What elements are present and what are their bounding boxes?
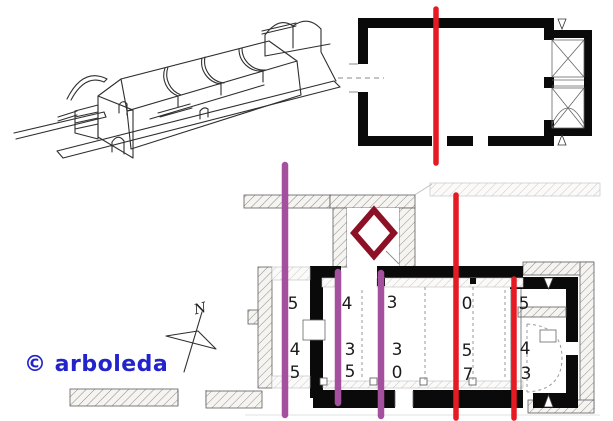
sketch-east-structure [265, 26, 336, 81]
nave-west-door [303, 320, 325, 340]
sketch-floor-lines [150, 85, 264, 119]
lower-plan-faint-connector [413, 184, 432, 196]
plan-cell-r1c1: 3 [345, 340, 356, 360]
sketch-front-wall [127, 61, 301, 149]
sketch-arch-rib-1 [164, 67, 181, 96]
upper-plan-south-door-gap-2 [473, 136, 488, 146]
compass-rose: N [166, 300, 216, 372]
upper-plan-cross-vault-lines [552, 40, 584, 77]
sketch-plinth [57, 81, 340, 158]
nave-pier-stub-2 [470, 278, 476, 284]
upper-plan-east-wall-a [544, 18, 554, 40]
courtyard-gate-jambs [178, 390, 206, 405]
sketch-arch-rib-2 [202, 57, 224, 84]
plan-cell-r1c3: 5 [462, 341, 473, 361]
courtyard-south-wall-a [70, 389, 178, 406]
nave-south-door-jambs [395, 391, 413, 407]
nave-west-wall-a [310, 266, 323, 324]
upper-plan-south-wall [358, 136, 554, 146]
nave-north-ledge-a [322, 278, 335, 287]
scanned-architecture-page: 5 4 3 0 5 4 3 3 5 4 5 5 0 7 3 N © arbole… [0, 0, 613, 421]
upper-floor-plan [338, 18, 592, 146]
plan-cell-r1c2: 3 [392, 340, 403, 360]
upper-plan-west-wall-a [358, 28, 368, 64]
sketch-dome [67, 76, 107, 100]
plan-cell-r0c0: 5 [288, 294, 299, 314]
upper-plan-east-wall-c [544, 120, 554, 146]
plan-cell-r2c0: 5 [290, 363, 301, 383]
upper-plan-window-mark-top [558, 19, 566, 29]
upper-plan-bay-divider [552, 80, 584, 86]
compass-label: N [191, 300, 208, 319]
plan-cell-r2c3: 7 [463, 365, 474, 385]
chancel-outer-east-wall [580, 262, 594, 410]
upper-plan-dome-lines [552, 88, 584, 128]
courtyard-west-wall [258, 267, 272, 388]
nave-west-wall-b [310, 338, 323, 398]
tower-west-wall [333, 208, 347, 267]
sketch-arch-rib-3 [239, 48, 266, 71]
chancel-east-door-gap [566, 342, 578, 355]
plan-cell-r0c3: 0 [462, 294, 473, 314]
nave-north-ledge-b [377, 278, 523, 287]
plan-cell-r0c1: 4 [342, 294, 353, 314]
nave-north-wall-b [377, 266, 523, 278]
courtyard-west-wall-step [248, 310, 258, 324]
upper-plan-west-wall-b [358, 92, 368, 136]
upper-plan-north-wall [358, 18, 554, 28]
compass-needle [184, 312, 202, 372]
tower-east-wall [399, 208, 415, 267]
plan-cell-r2c1: 5 [345, 362, 356, 382]
plan-cell-r2c4: 3 [521, 364, 532, 384]
perspective-sketch [14, 21, 340, 158]
watermark: © arboleda [24, 352, 168, 377]
sketch-back-wall [121, 41, 297, 111]
upper-plan-annex-east-wall [584, 30, 592, 136]
nave-south-wall-b [413, 390, 523, 408]
upper-plan-window-mark-bottom [558, 135, 566, 145]
plan-cell-r0c4: 5 [519, 294, 530, 314]
compass-pointer [166, 331, 216, 349]
tower-north-wall [330, 195, 415, 208]
courtyard-south-wall-b [206, 391, 262, 408]
plan-cell-r1c0: 4 [290, 340, 301, 360]
plan-cell-r1c4: 4 [520, 339, 531, 359]
narthex-north-ledge [272, 267, 310, 280]
plan-cell-r0c2: 3 [387, 293, 398, 313]
chancel-altar-mark [540, 330, 556, 342]
plan-cell-r2c2: 0 [392, 363, 403, 383]
